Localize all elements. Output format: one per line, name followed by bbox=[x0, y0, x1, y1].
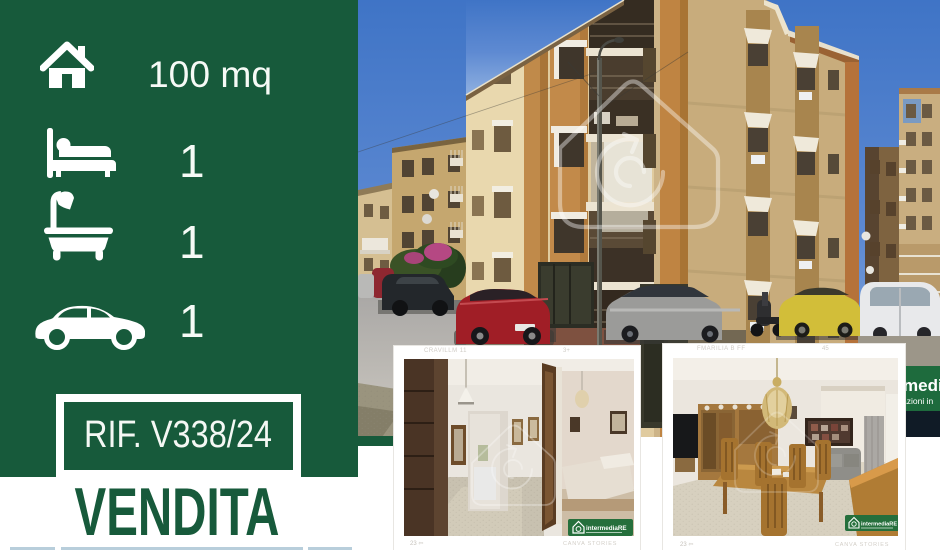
svg-text:intermediaRE: intermediaRE bbox=[586, 525, 627, 532]
svg-text:medi: medi bbox=[903, 376, 940, 395]
svg-text:1: 1 bbox=[179, 216, 205, 268]
svg-text:1: 1 bbox=[179, 295, 205, 347]
svg-text:VENDITA: VENDITA bbox=[75, 478, 280, 548]
svg-text:100 mq: 100 mq bbox=[148, 54, 272, 95]
svg-text:azioni in: azioni in bbox=[902, 396, 933, 406]
svg-text:intermediaRE: intermediaRE bbox=[861, 522, 897, 528]
svg-text:RIF. V338/24: RIF. V338/24 bbox=[84, 414, 272, 456]
svg-text:1: 1 bbox=[179, 135, 205, 187]
